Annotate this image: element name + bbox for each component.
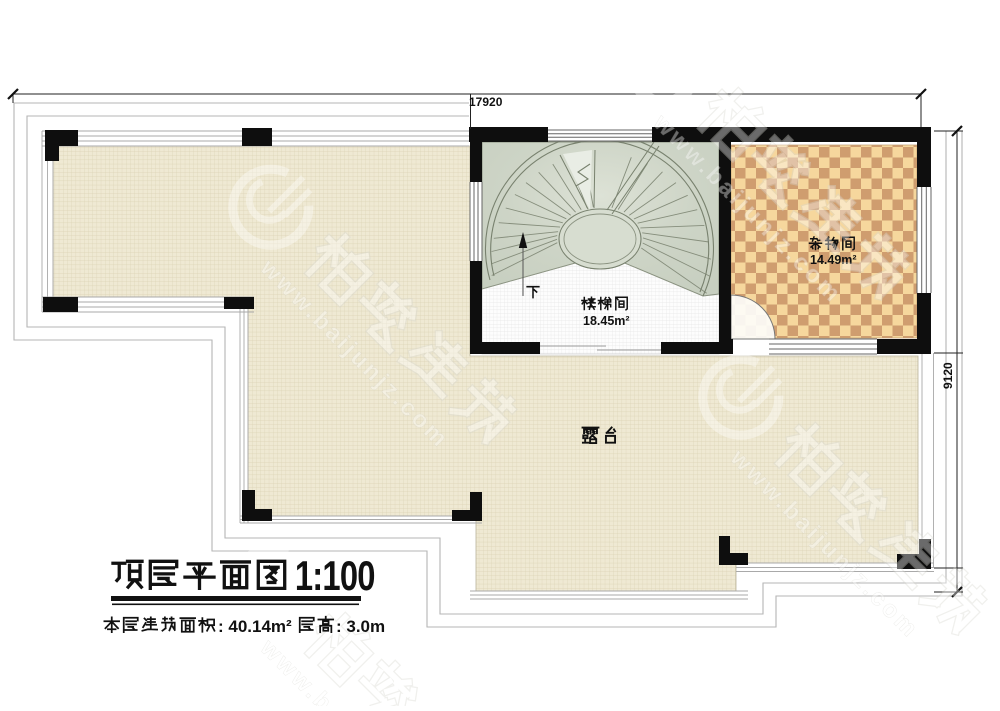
svg-text:9120: 9120 (941, 362, 955, 389)
svg-text:: 40.14m²: : 40.14m² (218, 617, 292, 636)
svg-text:1:100: 1:100 (295, 552, 375, 599)
svg-text:17920: 17920 (469, 95, 503, 109)
svg-text:18.45m²: 18.45m² (583, 314, 630, 328)
svg-text:: 3.0m: : 3.0m (336, 617, 385, 636)
